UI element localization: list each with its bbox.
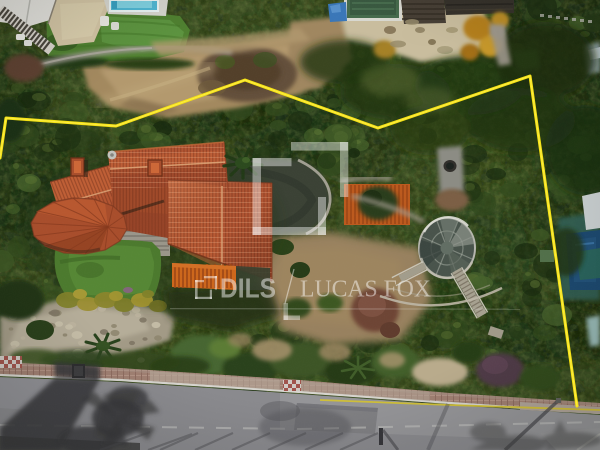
svg-text:LUCAS FOX: LUCAS FOX [300, 277, 431, 303]
svg-text:DILS: DILS [220, 273, 276, 304]
